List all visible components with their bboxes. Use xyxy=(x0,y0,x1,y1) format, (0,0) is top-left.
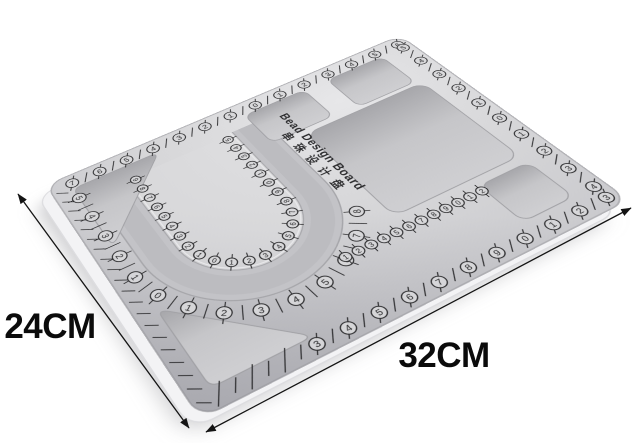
width-dimension-arrow xyxy=(206,208,631,432)
dimension-overlay xyxy=(0,0,637,443)
width-dimension-label: 32CM xyxy=(386,338,502,373)
product-photo: 7654321012345634567890123543210123498765… xyxy=(0,0,637,443)
height-dimension-label: 24CM xyxy=(0,309,100,344)
